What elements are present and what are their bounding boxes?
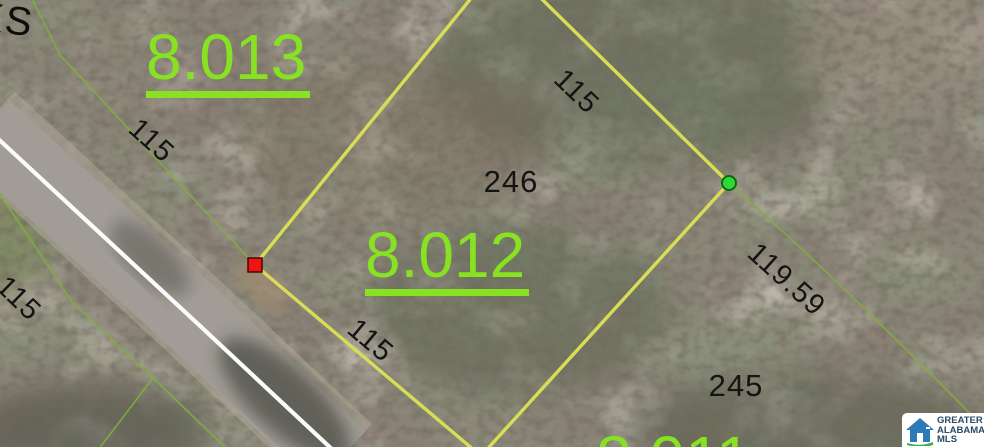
parcel-label-8011[interactable]: 8.011 (596, 426, 755, 447)
lot-number-246: 246 (484, 164, 539, 200)
mls-house-icon (905, 416, 935, 446)
lot-number-245: 245 (709, 368, 764, 404)
street-name-fragment: KS (0, 0, 37, 47)
mls-watermark: GREATER ALABAMA MLS (902, 413, 984, 447)
parcel-label-8013[interactable]: 8.013 (146, 24, 310, 98)
mls-watermark-line3: MLS (937, 435, 984, 445)
parcel-label-8012[interactable]: 8.012 (365, 222, 529, 296)
aerial-parcel-map[interactable]: KS 8.013 8.012 8.011 115 115 115 115 119… (0, 0, 984, 447)
vertex-marker-green-dot[interactable] (722, 176, 736, 190)
vertex-marker-red-square[interactable] (248, 258, 262, 272)
mls-watermark-text: GREATER ALABAMA MLS (937, 416, 984, 445)
